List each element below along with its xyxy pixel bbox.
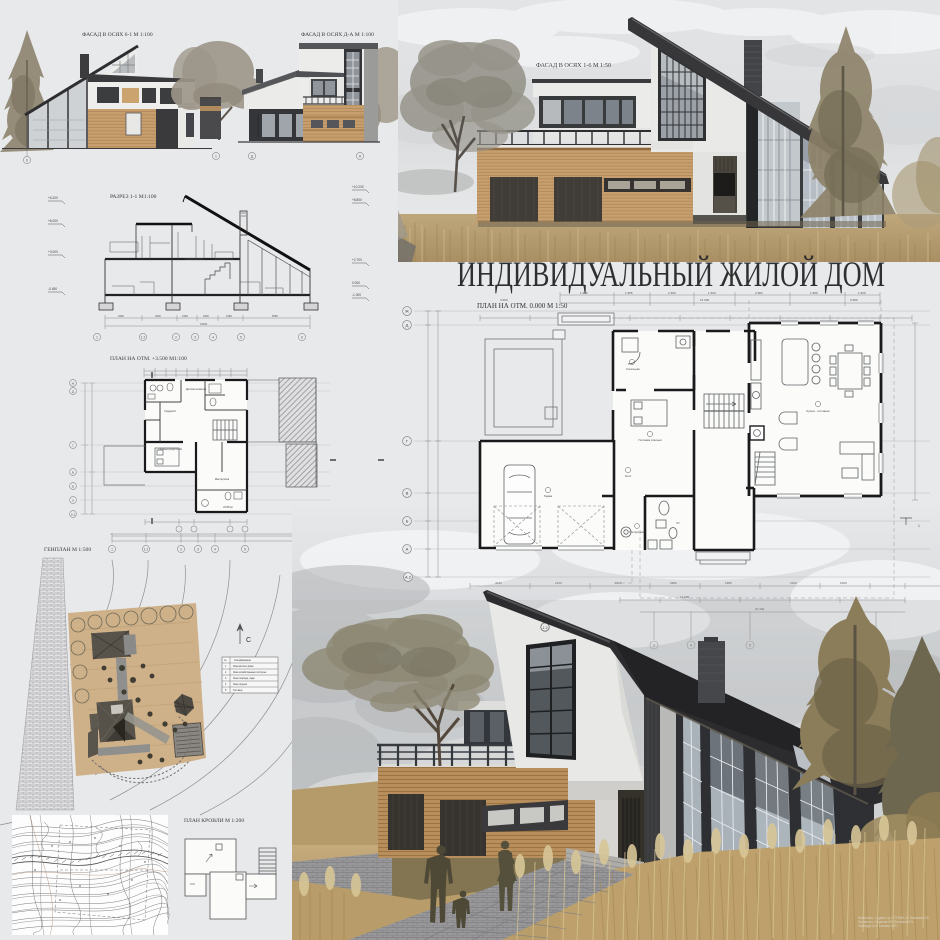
svg-text:6: 6 (301, 336, 303, 340)
svg-text:1 2: 1 2 (543, 626, 548, 630)
svg-text:5080: 5080 (272, 314, 278, 318)
svg-text:СУ: СУ (676, 521, 680, 525)
svg-text:ПЛАН НА ОТМ. 0.000 М 1:50: ПЛАН НА ОТМ. 0.000 М 1:50 (477, 302, 568, 310)
svg-text:Детская комната: Детская комната (186, 387, 207, 391)
svg-text:Ж: Ж (72, 382, 75, 386)
svg-text:-1.000: -1.000 (352, 293, 361, 297)
svg-text:-0.450: -0.450 (48, 287, 57, 291)
svg-text:16200: 16200 (200, 322, 208, 326)
svg-text:Кухня - гостиная: Кухня - гостиная (807, 409, 830, 413)
svg-text:1.2: 1.2 (144, 548, 149, 552)
svg-text:Спальня родителей: Спальня родителей (158, 447, 182, 451)
svg-text:4: 4 (214, 548, 216, 552)
svg-text:1980: 1980 (226, 314, 232, 318)
svg-text:Теплица: Теплица (233, 689, 243, 692)
svg-text:ИНДИВИДУАЛЬНЫЙ ЖИЛОЙ ДОМ: ИНДИВИДУАЛЬНЫЙ ЖИЛОЙ ДОМ (457, 254, 885, 294)
svg-text:А.2: А.2 (71, 513, 76, 517)
svg-text:№: № (224, 659, 227, 662)
svg-text:ГЕНПЛАН М 1:500: ГЕНПЛАН М 1:500 (44, 547, 91, 553)
svg-text:4: 4 (690, 644, 692, 648)
svg-text:6: 6 (26, 159, 28, 163)
svg-text:3: 3 (197, 548, 199, 552)
svg-text:Мастерская: Мастерская (215, 477, 230, 481)
svg-text:2 390: 2 390 (668, 291, 676, 295)
svg-text:Ж: Ж (405, 309, 409, 314)
svg-text:+6.000: +6.000 (48, 219, 58, 223)
svg-text:2690: 2690 (155, 314, 161, 318)
svg-text:2100: 2100 (555, 581, 562, 585)
svg-text:В: В (72, 471, 74, 475)
svg-text:1 600: 1 600 (858, 291, 866, 295)
svg-text:Холл: Холл (625, 474, 632, 478)
svg-text:0.000: 0.000 (352, 281, 360, 285)
svg-text:1600: 1600 (840, 581, 847, 585)
svg-text:1: 1 (111, 548, 113, 552)
svg-text:+2.700: +2.700 (352, 258, 362, 262)
svg-text:1: 1 (215, 155, 217, 159)
svg-text:1 600: 1 600 (580, 291, 588, 295)
svg-text:4440: 4440 (495, 581, 502, 585)
svg-text:2: 2 (175, 336, 177, 340)
svg-text:Постирочная: Постирочная (629, 530, 645, 534)
svg-text:1 980: 1 980 (810, 291, 818, 295)
svg-text:1980: 1980 (725, 581, 732, 585)
svg-text:1800: 1800 (203, 314, 209, 318)
svg-text:Б: Б (406, 519, 409, 524)
svg-text:23,58 м²: 23,58 м² (223, 505, 233, 509)
svg-text:3: 3 (653, 644, 655, 648)
svg-text:2980: 2980 (670, 581, 677, 585)
svg-text:Б: Б (72, 485, 74, 489)
svg-text:4: 4 (212, 336, 214, 340)
svg-text:Зона огорода, сада: Зона огорода, сада (233, 677, 255, 680)
svg-text:1: 1 (96, 336, 98, 340)
svg-text:3 980: 3 980 (850, 298, 858, 302)
svg-text:Кафедра А-5. Москва 2021: Кафедра А-5. Москва 2021 (858, 924, 898, 928)
svg-text:+8.800: +8.800 (352, 198, 362, 202)
svg-text:Гостевая спальня: Гостевая спальня (638, 438, 661, 442)
svg-text:1560: 1560 (182, 314, 188, 318)
svg-text:ПЛАН КРОВЛИ М 1:200: ПЛАН КРОВЛИ М 1:200 (184, 818, 244, 824)
svg-text:Гардероб: Гардероб (164, 409, 176, 413)
svg-text:Зона отдыха: Зона отдыха (233, 683, 248, 686)
svg-text:14 000: 14 000 (700, 298, 710, 302)
svg-text:В: В (406, 491, 409, 496)
svg-text:Гараж: Гараж (544, 494, 552, 498)
svg-text:5: 5 (244, 548, 246, 552)
svg-text:А: А (72, 499, 74, 503)
svg-text:1 600: 1 600 (708, 291, 716, 295)
svg-text:РАЗРЕЗ 1-1 М1:100: РАЗРЕЗ 1-1 М1:100 (110, 194, 157, 200)
svg-text:+6.200: +6.200 (48, 196, 58, 200)
svg-text:Зона хозяйственных построек: Зона хозяйственных построек (233, 671, 267, 674)
svg-text:20 440: 20 440 (755, 607, 765, 611)
svg-text:+10.200: +10.200 (352, 185, 364, 189)
svg-text:А.2: А.2 (405, 575, 412, 580)
svg-text:14 000: 14 000 (680, 595, 690, 599)
svg-text:2: 2 (180, 548, 182, 552)
svg-text:ФАСАД В ОСЯХ 1-6 М 1:50: ФАСАД В ОСЯХ 1-6 М 1:50 (536, 62, 611, 69)
svg-text:ПЛАН НА ОТМ. +3.500 М1:100: ПЛАН НА ОТМ. +3.500 М1:100 (110, 356, 187, 362)
svg-text:Зона жилого дома: Зона жилого дома (233, 665, 254, 668)
svg-text:2100: 2100 (790, 581, 797, 585)
svg-text:Котельная: Котельная (626, 367, 640, 371)
svg-text:Д: Д (72, 390, 74, 394)
svg-text:5: 5 (749, 644, 751, 648)
svg-text:2900: 2900 (118, 314, 124, 318)
svg-text:1: 1 (918, 524, 920, 528)
svg-text:ФАСАД В ОСЯХ 6-1 М 1:100: ФАСАД В ОСЯХ 6-1 М 1:100 (82, 32, 153, 38)
svg-text:ФАСАД В ОСЯХ Д-А М 1:100: ФАСАД В ОСЯХ Д-А М 1:100 (301, 32, 374, 38)
svg-text:1 985: 1 985 (625, 291, 633, 295)
svg-text:Спецификация: Спецификация (234, 659, 251, 662)
svg-text:4 660: 4 660 (500, 298, 508, 302)
svg-text:5: 5 (240, 336, 242, 340)
svg-text:Д: Д (406, 323, 409, 328)
svg-text:С: С (246, 637, 251, 644)
svg-text:3: 3 (194, 336, 196, 340)
svg-text:1.2: 1.2 (141, 336, 146, 340)
svg-text:А: А (406, 547, 409, 552)
svg-text:2 980: 2 980 (755, 291, 763, 295)
svg-text:+3.000: +3.000 (48, 250, 58, 254)
